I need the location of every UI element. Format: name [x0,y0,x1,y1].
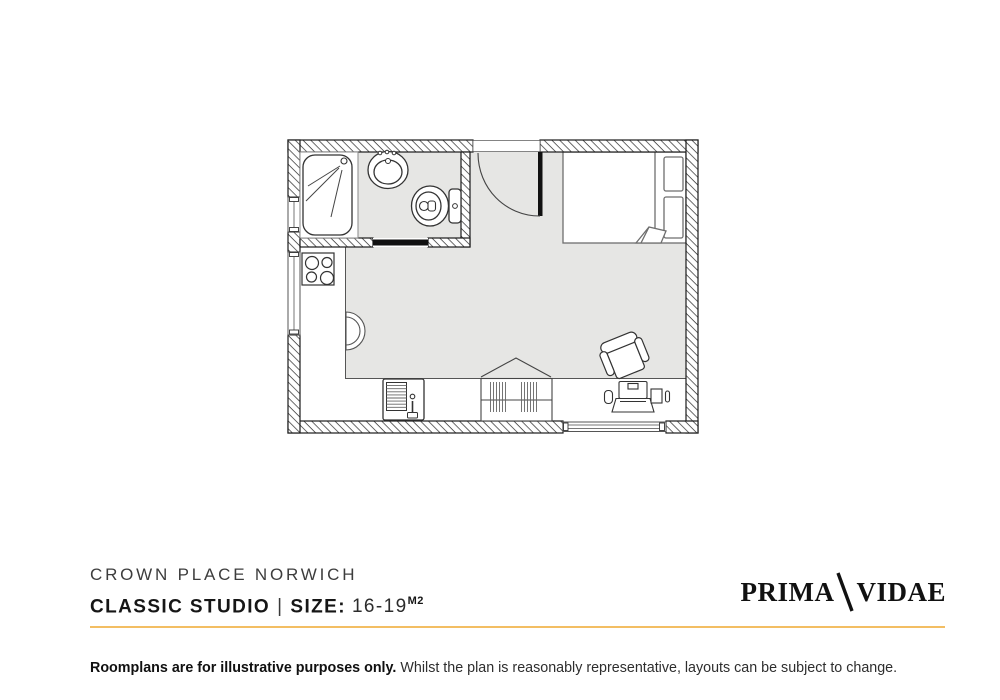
window-left-upper [288,197,300,232]
desk-box [651,389,662,403]
brand-part2: VIDAE [856,577,946,608]
window-left-lower [288,252,300,335]
hob [302,253,334,285]
toilet [412,186,462,226]
desk-pill [666,391,670,402]
size-value: 16-19 [352,596,408,617]
room-type: CLASSIC STUDIO [90,596,270,617]
brand-slash-icon [835,572,855,612]
brand-part1: PRIMA [741,577,835,608]
property-name: CROWN PLACE NORWICH [90,564,424,586]
disclaimer: Roomplans are for illustrative purposes … [90,658,950,678]
flyer-page: CROWN PLACE NORWICH CLASSIC STUDIO|SIZE:… [0,0,1000,700]
brand-logo: PRIMA VIDAE [741,572,947,612]
floorplan [0,0,1000,460]
window-bottom [563,422,666,432]
separator: | [277,596,283,617]
size-unit: M2 [408,595,424,607]
mouse [605,391,613,404]
disclaimer-regular: Whilst the plan is reasonably representa… [400,660,897,676]
floorplan-container [0,0,1000,460]
size-label: SIZE: [290,596,346,617]
kitchen-sink [383,379,424,420]
footer-text-block: CROWN PLACE NORWICH CLASSIC STUDIO|SIZE:… [90,564,424,619]
room-size-line: CLASSIC STUDIO|SIZE:16-19M2 [90,590,424,619]
washbasin [368,150,408,188]
double-bed [563,152,686,243]
disclaimer-bold: Roomplans are for illustrative purposes … [90,660,396,676]
shower [300,152,358,238]
gold-divider [90,626,945,628]
sliding-bathroom-door [373,238,428,247]
